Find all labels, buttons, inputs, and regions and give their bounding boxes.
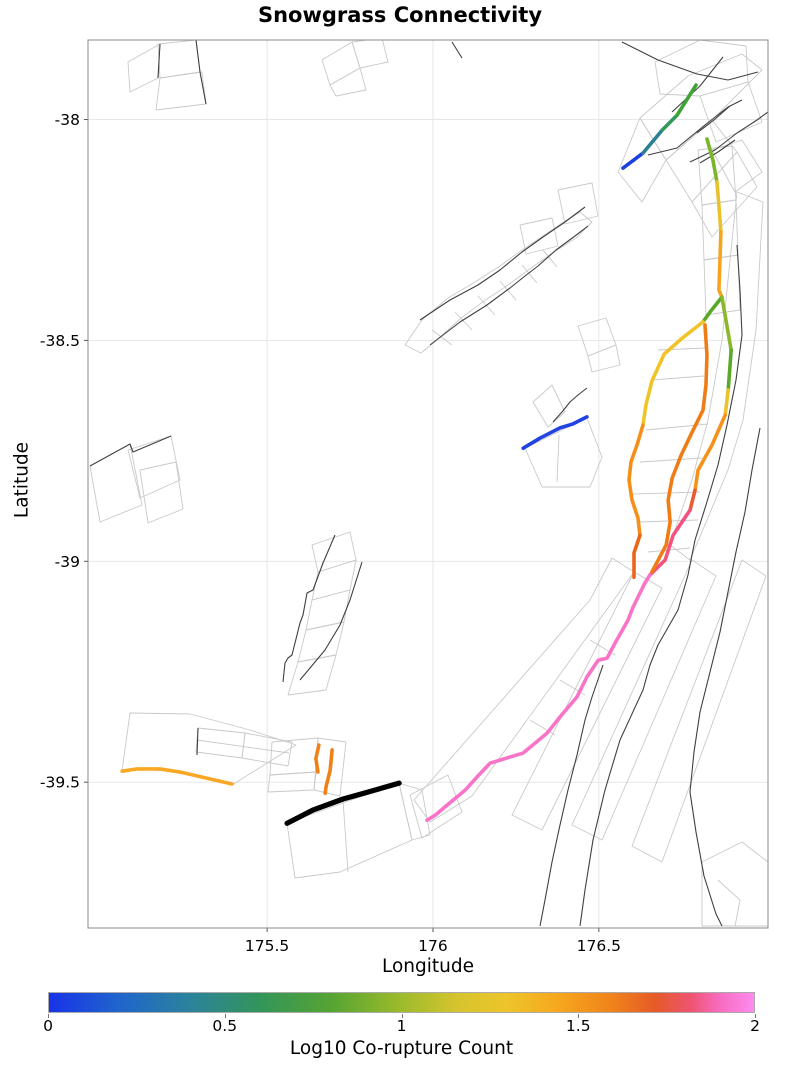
- corupture-trace: [728, 350, 731, 390]
- corupture-trace: [719, 232, 722, 297]
- fault-section-polygon: [140, 462, 183, 523]
- fault-section-polygon: [666, 120, 737, 202]
- x-tick-label: 175.5: [245, 937, 289, 955]
- fault-section-polygon: [692, 152, 757, 237]
- colorbar-gradient: [48, 992, 755, 1013]
- fault-section-polygon: [572, 560, 716, 840]
- fault-trace-line: [690, 428, 760, 926]
- corupture-trace: [662, 115, 677, 130]
- corupture-trace: [427, 575, 650, 820]
- fault-section-polygon: [158, 40, 200, 78]
- fault-section-polygon: [702, 842, 768, 926]
- fault-section-line: [522, 265, 537, 283]
- fault-section-polygon: [655, 40, 748, 96]
- fault-trace-line: [430, 226, 588, 345]
- fault-section-polygon: [640, 54, 762, 160]
- fault-section-polygon: [533, 385, 565, 427]
- fault-section-polygon: [578, 318, 616, 356]
- fault-section-line: [432, 330, 452, 345]
- corupture-trace: [325, 750, 332, 793]
- fault-section-line: [718, 880, 740, 926]
- fault-section-polygon: [298, 622, 344, 662]
- fault-trace-line: [300, 562, 362, 680]
- corupture-trace: [629, 425, 643, 535]
- fault-trace-line: [452, 42, 462, 58]
- corupture-trace: [316, 745, 319, 772]
- fault-section-polygon: [588, 345, 620, 372]
- x-axis-label: Longitude: [88, 956, 768, 977]
- x-tick-label: 176: [418, 937, 448, 955]
- corupture-trace: [643, 322, 703, 425]
- fault-section-polygon: [352, 38, 388, 68]
- fault-section-polygon: [90, 444, 142, 522]
- colorbar-label: Log10 Co-rupture Count: [48, 1038, 755, 1059]
- fault-section-line: [640, 458, 702, 462]
- corupture-trace: [623, 153, 643, 168]
- fault-section-polygon: [700, 82, 762, 142]
- corupture-trace: [677, 85, 696, 115]
- fault-trace-line: [197, 728, 198, 755]
- corupture-trace: [707, 139, 717, 182]
- y-tick-label: -39: [55, 553, 80, 571]
- y-tick-label: -39.5: [40, 774, 80, 792]
- y-tick-label: -38: [55, 111, 80, 129]
- fault-section-polygon: [618, 118, 666, 202]
- fault-section-line: [658, 348, 706, 350]
- fault-trace-line: [622, 42, 758, 80]
- fault-section-line: [557, 435, 559, 482]
- plot-border: [88, 40, 768, 928]
- fault-section-polygon: [558, 183, 598, 224]
- figure: Snowgrass Connectivity 175.5176176.5-38-…: [0, 0, 800, 1074]
- corupture-trace: [725, 390, 728, 415]
- fault-section-polygon: [156, 72, 206, 110]
- fault-section-line: [500, 281, 516, 300]
- fault-section-polygon: [520, 218, 558, 254]
- fault-section-polygon: [330, 68, 366, 96]
- corupture-trace: [690, 490, 695, 510]
- fault-section-polygon: [128, 44, 160, 92]
- fault-trace-line: [580, 245, 742, 926]
- x-tick-label: 176.5: [577, 937, 621, 955]
- fault-section-line: [343, 800, 348, 872]
- map-canvas: 175.5176176.5-38-38.5-39-39.5: [0, 0, 800, 1074]
- fault-section-line: [652, 376, 704, 380]
- colorbar-tick-label: 0: [43, 1017, 53, 1035]
- fault-section-polygon: [288, 655, 336, 695]
- fault-section-polygon: [670, 192, 763, 560]
- colorbar-tick-label: 1: [397, 1017, 407, 1035]
- fault-trace-line: [553, 388, 587, 422]
- fault-section-polygon: [632, 560, 766, 862]
- fault-section-line: [646, 424, 708, 430]
- corupture-trace: [523, 417, 587, 448]
- colorbar-tick-label: 2: [750, 1017, 760, 1035]
- colorbar-tick-label: 1.5: [566, 1017, 591, 1035]
- colorbar-tick-label: 0.5: [212, 1017, 237, 1035]
- y-tick-label: -38.5: [40, 332, 80, 350]
- y-axis-label: Latitude: [12, 442, 33, 518]
- corupture-trace: [634, 535, 640, 577]
- fault-section-line: [633, 492, 700, 494]
- corupture-trace: [717, 182, 721, 232]
